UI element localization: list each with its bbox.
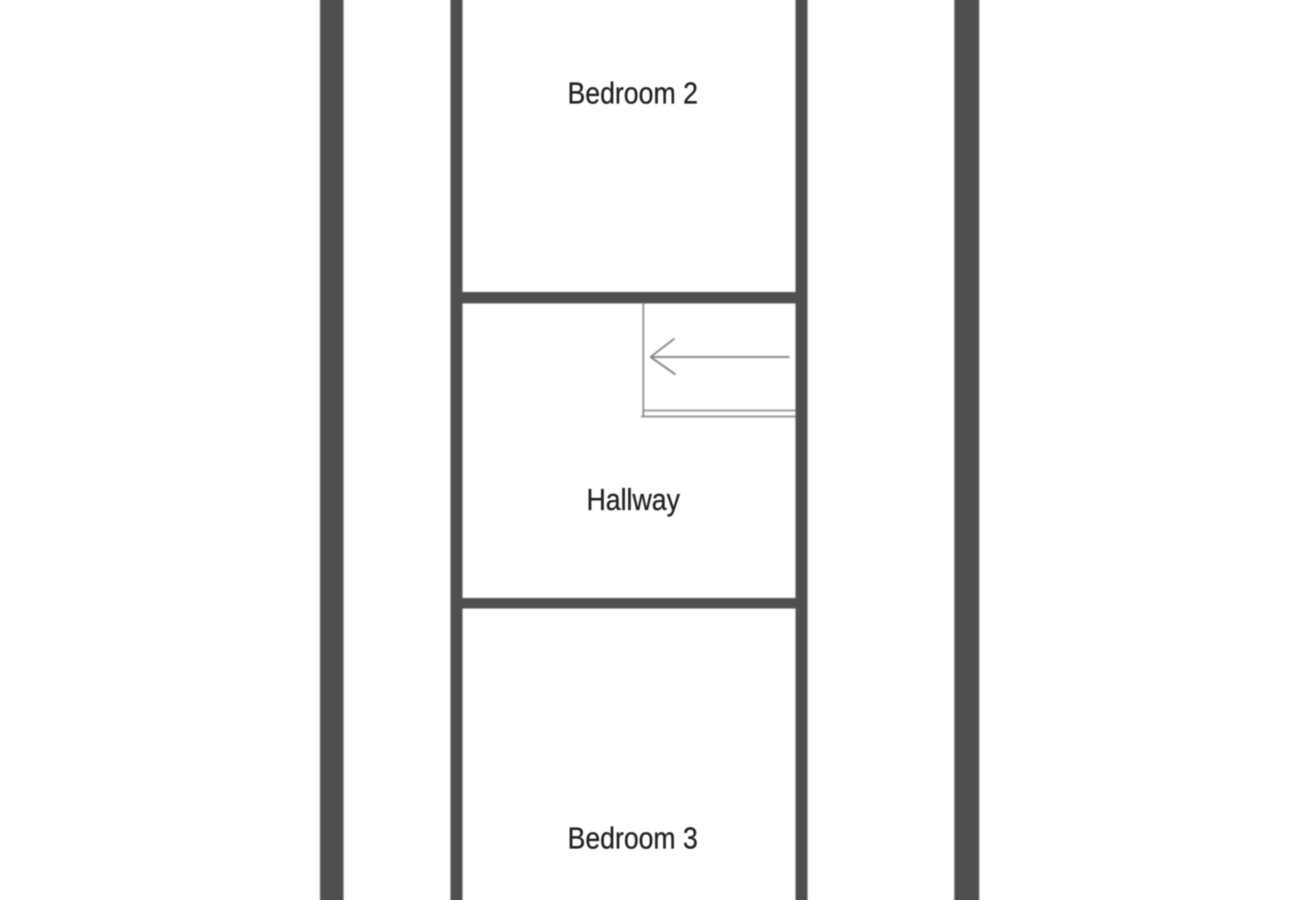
svg-text:Hallway: Hallway <box>586 482 680 517</box>
svg-text:Bedroom 3: Bedroom 3 <box>568 820 698 855</box>
svg-text:Bedroom 2: Bedroom 2 <box>568 76 698 111</box>
